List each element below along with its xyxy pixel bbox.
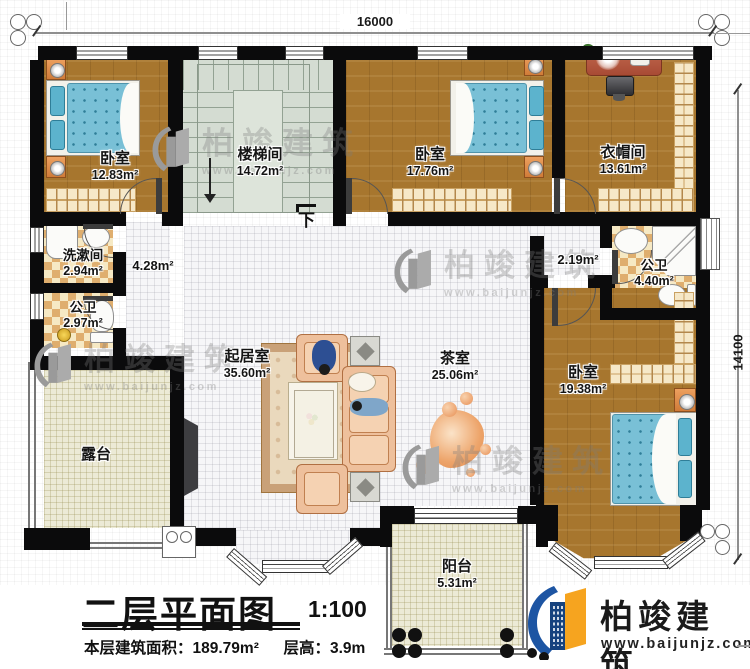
column-base: [162, 526, 196, 558]
room-name: 衣帽间: [568, 144, 678, 162]
bed-sheet: [652, 414, 676, 504]
dimension-line-top: [36, 32, 714, 34]
brand-logo-icon: [524, 580, 594, 660]
column-icon: [700, 524, 715, 539]
wall-segment: [696, 322, 710, 510]
room-area: 14.72m²: [205, 164, 315, 179]
room-label-cloakroom: 衣帽间 13.61m²: [568, 144, 678, 176]
person-head: [352, 401, 362, 411]
window: [198, 46, 238, 60]
room-area: 13.61m²: [568, 162, 678, 177]
room-area: 4.28m²: [118, 258, 188, 273]
watermark: 柏竣建筑 www.baijunjz.com: [400, 436, 612, 495]
room-label-bedroom-br: 卧室 19.38m²: [528, 364, 638, 396]
wall-segment: [162, 212, 168, 226]
nightstand: [674, 388, 696, 412]
nightstand: [524, 156, 544, 178]
brand-logo-icon: [400, 439, 444, 493]
watermark-site: www.baijunjz.com: [84, 381, 244, 393]
window: [76, 46, 128, 60]
room-name: 露台: [64, 446, 128, 464]
plan-area-text: 本层建筑面积：189.79m²: [84, 640, 259, 657]
column-icon: [715, 540, 730, 555]
stair-down-arrow-icon: [204, 194, 216, 203]
wardrobe: [674, 292, 694, 364]
plan-info: 本层建筑面积：189.79m² 层高：3.9m: [84, 636, 365, 658]
lamp-icon: [679, 394, 695, 410]
window: [602, 46, 694, 60]
bay-window: [262, 560, 330, 573]
window: [285, 46, 324, 60]
room-name: 起居室: [192, 348, 302, 366]
room-label-living: 起居室 35.60m²: [192, 348, 302, 380]
window: [414, 508, 518, 524]
dimension-right: 14100: [731, 323, 746, 383]
room-area: 17.76m²: [375, 164, 485, 179]
armchair: [296, 464, 348, 514]
stairs-down-label: 下: [298, 206, 315, 231]
room-label-bath-right: 公卫 4.40m²: [612, 258, 696, 289]
wall-segment: [380, 506, 392, 547]
wardrobe: [598, 188, 694, 212]
window: [417, 46, 468, 60]
room-name: 公卫: [38, 300, 128, 316]
room-name: 阳台: [402, 558, 512, 576]
room-area: 35.60m²: [192, 366, 302, 381]
watermark: 柏竣建筑 www.baijunjz.com: [392, 240, 604, 299]
table-top: [356, 342, 374, 360]
floor-plan: 柏竣建筑 www.baijunjz.com 柏竣建筑 www.baijunjz.…: [0, 0, 750, 669]
bay-window: [594, 556, 668, 569]
door-leaf: [156, 178, 162, 214]
room-area: 2.97m²: [38, 316, 128, 331]
column-icon: [698, 14, 714, 30]
brand-logo-icon: [392, 243, 436, 297]
pillow: [678, 460, 692, 498]
throw-pillow: [348, 372, 376, 392]
column-icon: [715, 524, 730, 539]
wall-segment: [552, 212, 565, 226]
room-label-stairwell: 楼梯间 14.72m²: [205, 146, 315, 178]
watermark-name: 柏竣建筑: [452, 436, 612, 481]
cushion: [349, 435, 389, 465]
pillow: [529, 120, 544, 150]
wall-segment: [696, 60, 710, 322]
lamp-icon: [528, 161, 543, 176]
decorative-line: [737, 645, 750, 647]
room-area: 25.06m²: [400, 368, 510, 383]
pillar: [24, 528, 90, 550]
tea-stone: [460, 392, 473, 405]
wall-segment: [552, 46, 565, 178]
room-label-balcony: 阳台 5.31m²: [402, 558, 512, 590]
lamp-icon: [528, 59, 543, 74]
room-label-bath-left: 公卫 2.97m²: [38, 300, 128, 331]
wall-segment: [388, 212, 552, 226]
table-top: [356, 478, 374, 496]
room-name: 楼梯间: [205, 146, 315, 164]
column-icon: [10, 30, 26, 46]
balcony-pillar: [500, 628, 514, 642]
dimension-top: 16000: [340, 14, 410, 29]
column-icon: [714, 14, 730, 30]
bed-sheet: [120, 83, 138, 153]
title-underline-thin: [82, 628, 300, 630]
balcony-pillar: [392, 628, 406, 642]
room-label-hall-left: 4.28m²: [118, 258, 188, 273]
floor-opening: [530, 226, 544, 236]
brand-logo-icon: [32, 337, 76, 391]
wall-segment: [600, 308, 696, 320]
coffee-table: [294, 390, 334, 458]
column-icon: [10, 14, 26, 30]
brand-name: 柏竣建筑: [600, 590, 750, 669]
room-name: 卧室: [528, 364, 638, 382]
wall-segment: [44, 283, 113, 293]
tea-stone: [442, 402, 457, 417]
room-label-bedroom-tc: 卧室 17.76m²: [375, 146, 485, 178]
pillow: [529, 86, 544, 116]
watermark-site: www.baijunjz.com: [452, 483, 612, 495]
room-label-terrace: 露台: [64, 446, 128, 464]
monitor-stand: [613, 94, 625, 101]
room-name: 卧室: [60, 150, 170, 168]
column-icon: [166, 531, 178, 543]
floor-living-south: [184, 506, 380, 530]
person-head: [319, 364, 330, 375]
balcony-pillar: [500, 644, 514, 658]
railing: [28, 362, 30, 550]
watermark-site: www.baijunjz.com: [444, 287, 604, 299]
room-area: 12.83m²: [60, 168, 170, 183]
pillow: [50, 120, 65, 150]
room-name: 茶室: [400, 350, 510, 368]
plan-title: 二层平面图: [82, 584, 277, 638]
dimension-guide: [66, 2, 67, 30]
column-icon: [180, 531, 192, 543]
plan-height-text: 层高：3.9m: [283, 640, 365, 657]
room-label-tea: 茶室 25.06m²: [400, 350, 510, 382]
cushion: [304, 472, 340, 506]
room-area: 5.31m²: [402, 576, 512, 591]
room-label-bedroom-tl: 卧室 12.83m²: [60, 150, 170, 182]
room-label-hall-right: 2.19m²: [543, 252, 613, 267]
room-area: 4.40m²: [612, 274, 696, 289]
room-name: 洗漱间: [38, 248, 128, 264]
title-underline: [82, 622, 300, 626]
plan-scale: 1:100: [308, 596, 367, 623]
brand-website: www.baijunjz.com: [601, 636, 750, 652]
room-area: 2.19m²: [543, 252, 613, 267]
room-area: 19.38m²: [528, 382, 638, 397]
room-area: 2.94m²: [38, 264, 128, 279]
nightstand: [46, 58, 66, 80]
wardrobe: [392, 188, 512, 212]
balcony-pillar: [392, 644, 406, 658]
side-table: [350, 472, 380, 502]
tv-icon: [184, 418, 198, 496]
lamp-icon: [50, 63, 65, 78]
pillow: [678, 418, 692, 456]
exterior-platform: [700, 218, 720, 270]
side-table: [350, 336, 380, 366]
room-name: 卧室: [375, 146, 485, 164]
room-label-washroom: 洗漱间 2.94m²: [38, 248, 128, 279]
brand-logo: [524, 580, 594, 660]
monitor-icon: [606, 76, 634, 96]
balcony-pillar: [408, 628, 422, 642]
dimension-guide: [712, 33, 750, 34]
wall-segment: [536, 505, 558, 541]
balcony-pillar: [408, 644, 422, 658]
room-name: 公卫: [612, 258, 696, 274]
wall-segment: [565, 212, 696, 226]
pillow: [50, 86, 65, 116]
